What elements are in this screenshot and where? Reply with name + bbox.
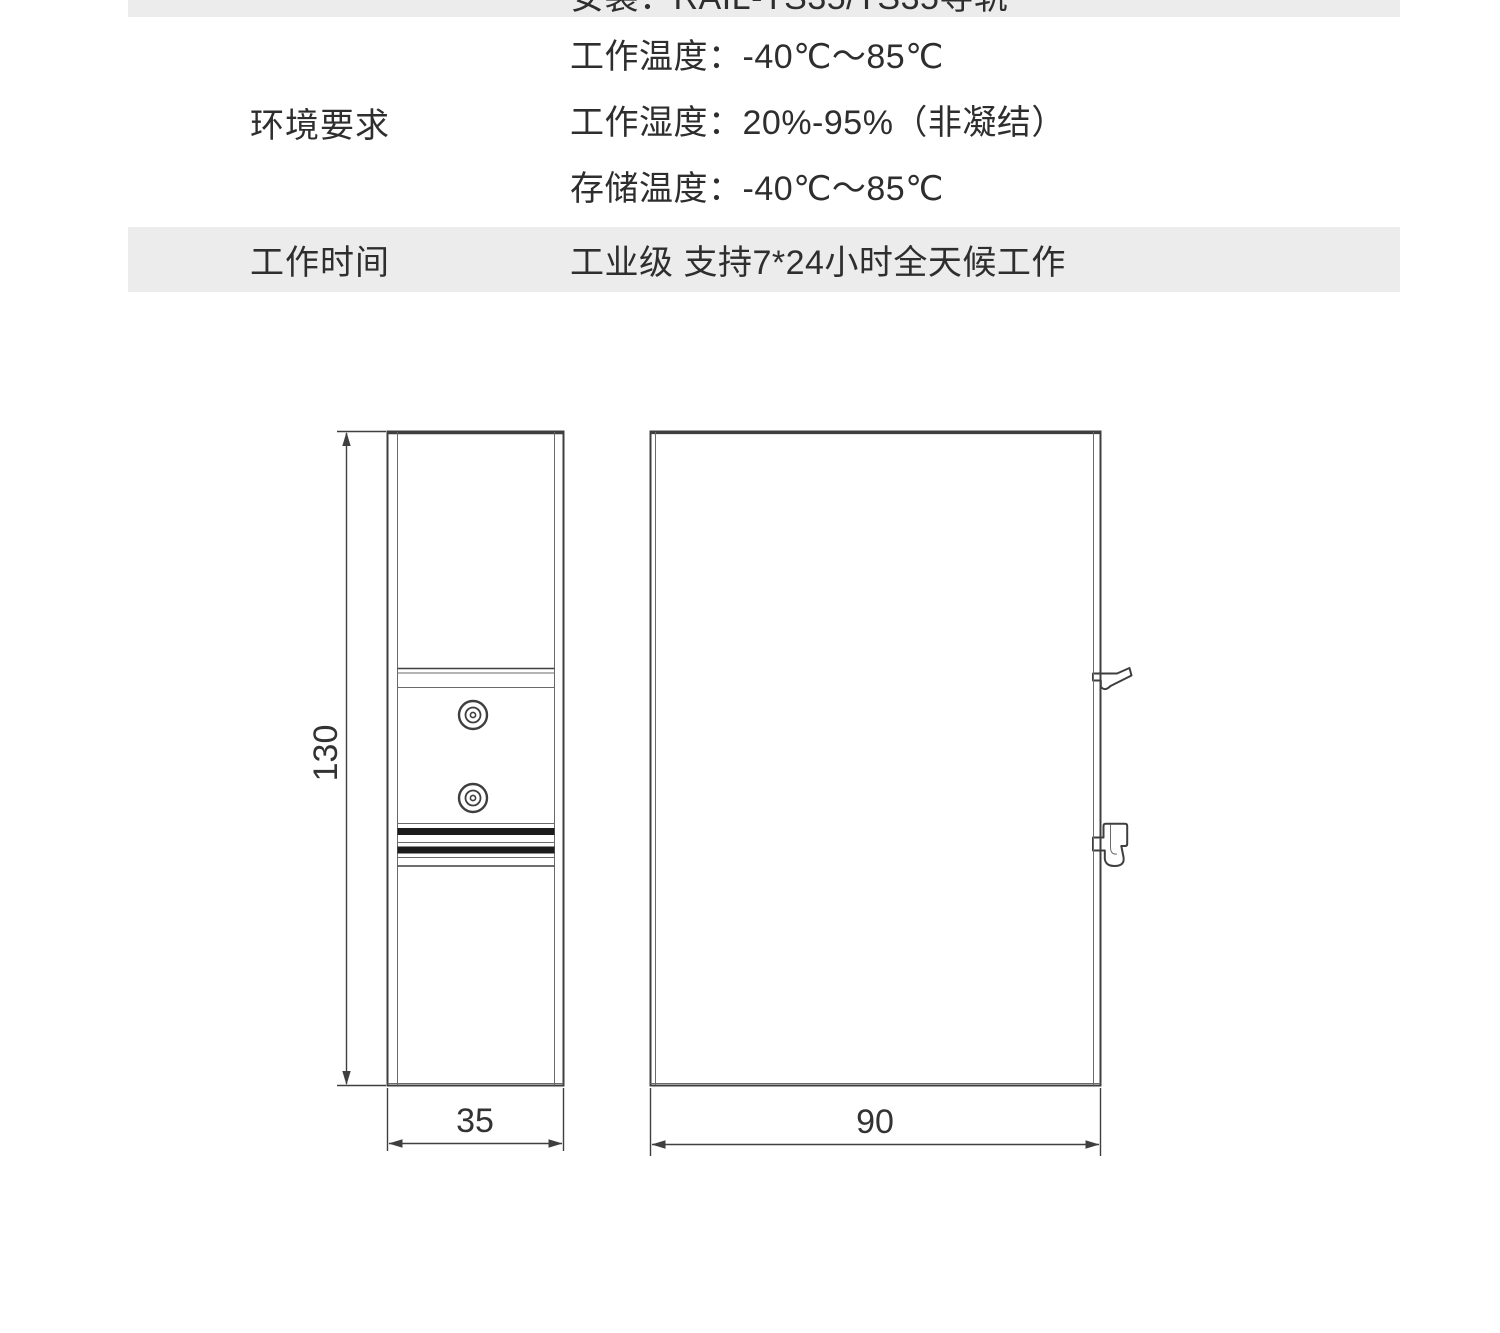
arrowhead-right-icon	[549, 1139, 563, 1147]
spec-values-environment: 工作温度：-40℃～85℃ 工作湿度：20%-95%（非凝结） 存储温度：-40…	[570, 17, 1066, 222]
dimension-drawings-svg: 130 35	[280, 420, 1180, 1180]
spec-row-installation: 安装：RAIL-TS35/TS35导轨	[128, 0, 1400, 17]
din-rail-section	[398, 824, 555, 867]
dim-width-90: 90	[651, 1088, 1101, 1156]
side-view-body	[388, 432, 564, 1086]
spec-label-worktime: 工作时间	[250, 227, 390, 292]
dim-height-130: 130	[307, 432, 386, 1086]
product-spec-page: 安装：RAIL-TS35/TS35导轨 环境要求 工作温度：-40℃～85℃ 工…	[0, 0, 1500, 1333]
spec-value-operating-temp: 工作温度：-40℃～85℃	[570, 24, 1066, 90]
front-view-body	[651, 432, 1101, 1086]
spec-value-storage-temp: 存储温度：-40℃～85℃	[570, 156, 1066, 222]
arrowhead-left-icon	[389, 1139, 403, 1147]
din-clip-hook-lower	[1093, 824, 1127, 866]
dim-label-width: 35	[456, 1102, 494, 1140]
side-view-drawing: 130 35	[307, 432, 564, 1152]
screw-top	[459, 701, 487, 729]
arrowhead-down-icon	[342, 1071, 350, 1085]
dimension-drawings: 130 35	[280, 420, 1180, 1180]
dim-width-35: 35	[388, 1088, 564, 1151]
arrowhead-left-icon	[652, 1140, 666, 1148]
dim-label-width: 90	[856, 1103, 894, 1141]
spec-label-environment: 环境要求	[250, 17, 390, 227]
spec-row-worktime: 工作时间 工业级 支持7*24小时全天候工作	[128, 227, 1400, 292]
spec-value-operating-humidity: 工作湿度：20%-95%（非凝结）	[570, 90, 1066, 156]
screw-bottom	[459, 784, 487, 812]
spec-row-environment: 环境要求 工作温度：-40℃～85℃ 工作湿度：20%-95%（非凝结） 存储温…	[128, 17, 1400, 227]
rail-band-lower	[398, 847, 555, 854]
spec-table: 安装：RAIL-TS35/TS35导轨 环境要求 工作温度：-40℃～85℃ 工…	[0, 0, 1500, 300]
dim-label-height: 130	[307, 725, 345, 782]
arrowhead-right-icon	[1086, 1140, 1100, 1148]
rail-band-upper	[398, 828, 555, 835]
spec-value-installation: 安装：RAIL-TS35/TS35导轨	[570, 0, 1008, 15]
din-clip-hook-upper	[1093, 668, 1132, 689]
arrowhead-up-icon	[342, 432, 350, 446]
front-view-drawing: 90	[651, 432, 1132, 1157]
spec-value-worktime: 工业级 支持7*24小时全天候工作	[570, 227, 1066, 292]
din-mount-plate	[398, 669, 555, 867]
